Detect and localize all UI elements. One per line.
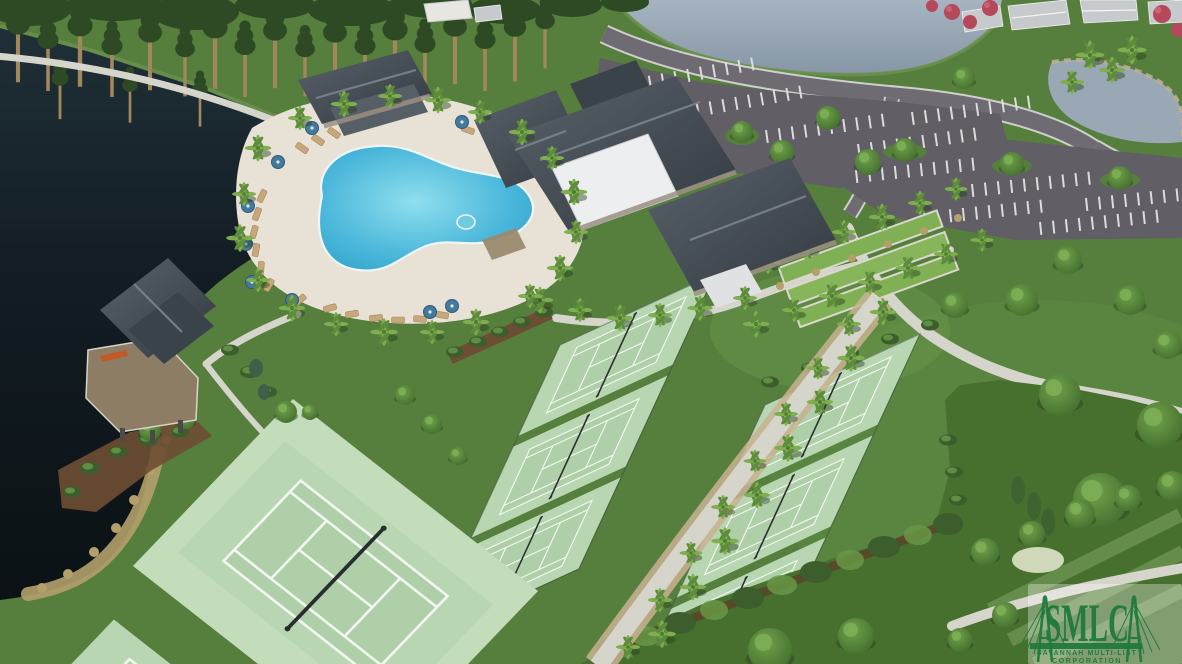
watermark-acronym: SMLC <box>1045 593 1129 653</box>
boathouse-piling <box>178 420 183 433</box>
smlc-watermark: SMLC SAVANNAH MULTI-LIST CORPORATION <box>1018 584 1182 664</box>
boathouse-piling <box>120 428 125 441</box>
flowering-shrub <box>1012 547 1064 573</box>
aerial-site-rendering: SMLC SAVANNAH MULTI-LIST CORPORATION <box>0 0 1182 664</box>
watermark-org-line1: SAVANNAH MULTI-LIST <box>1037 650 1137 657</box>
watermark-org-line2: CORPORATION <box>1052 658 1122 664</box>
spa <box>457 215 475 229</box>
rendering-canvas: SMLC SAVANNAH MULTI-LIST CORPORATION <box>0 0 1182 664</box>
boathouse-piling <box>150 430 155 443</box>
